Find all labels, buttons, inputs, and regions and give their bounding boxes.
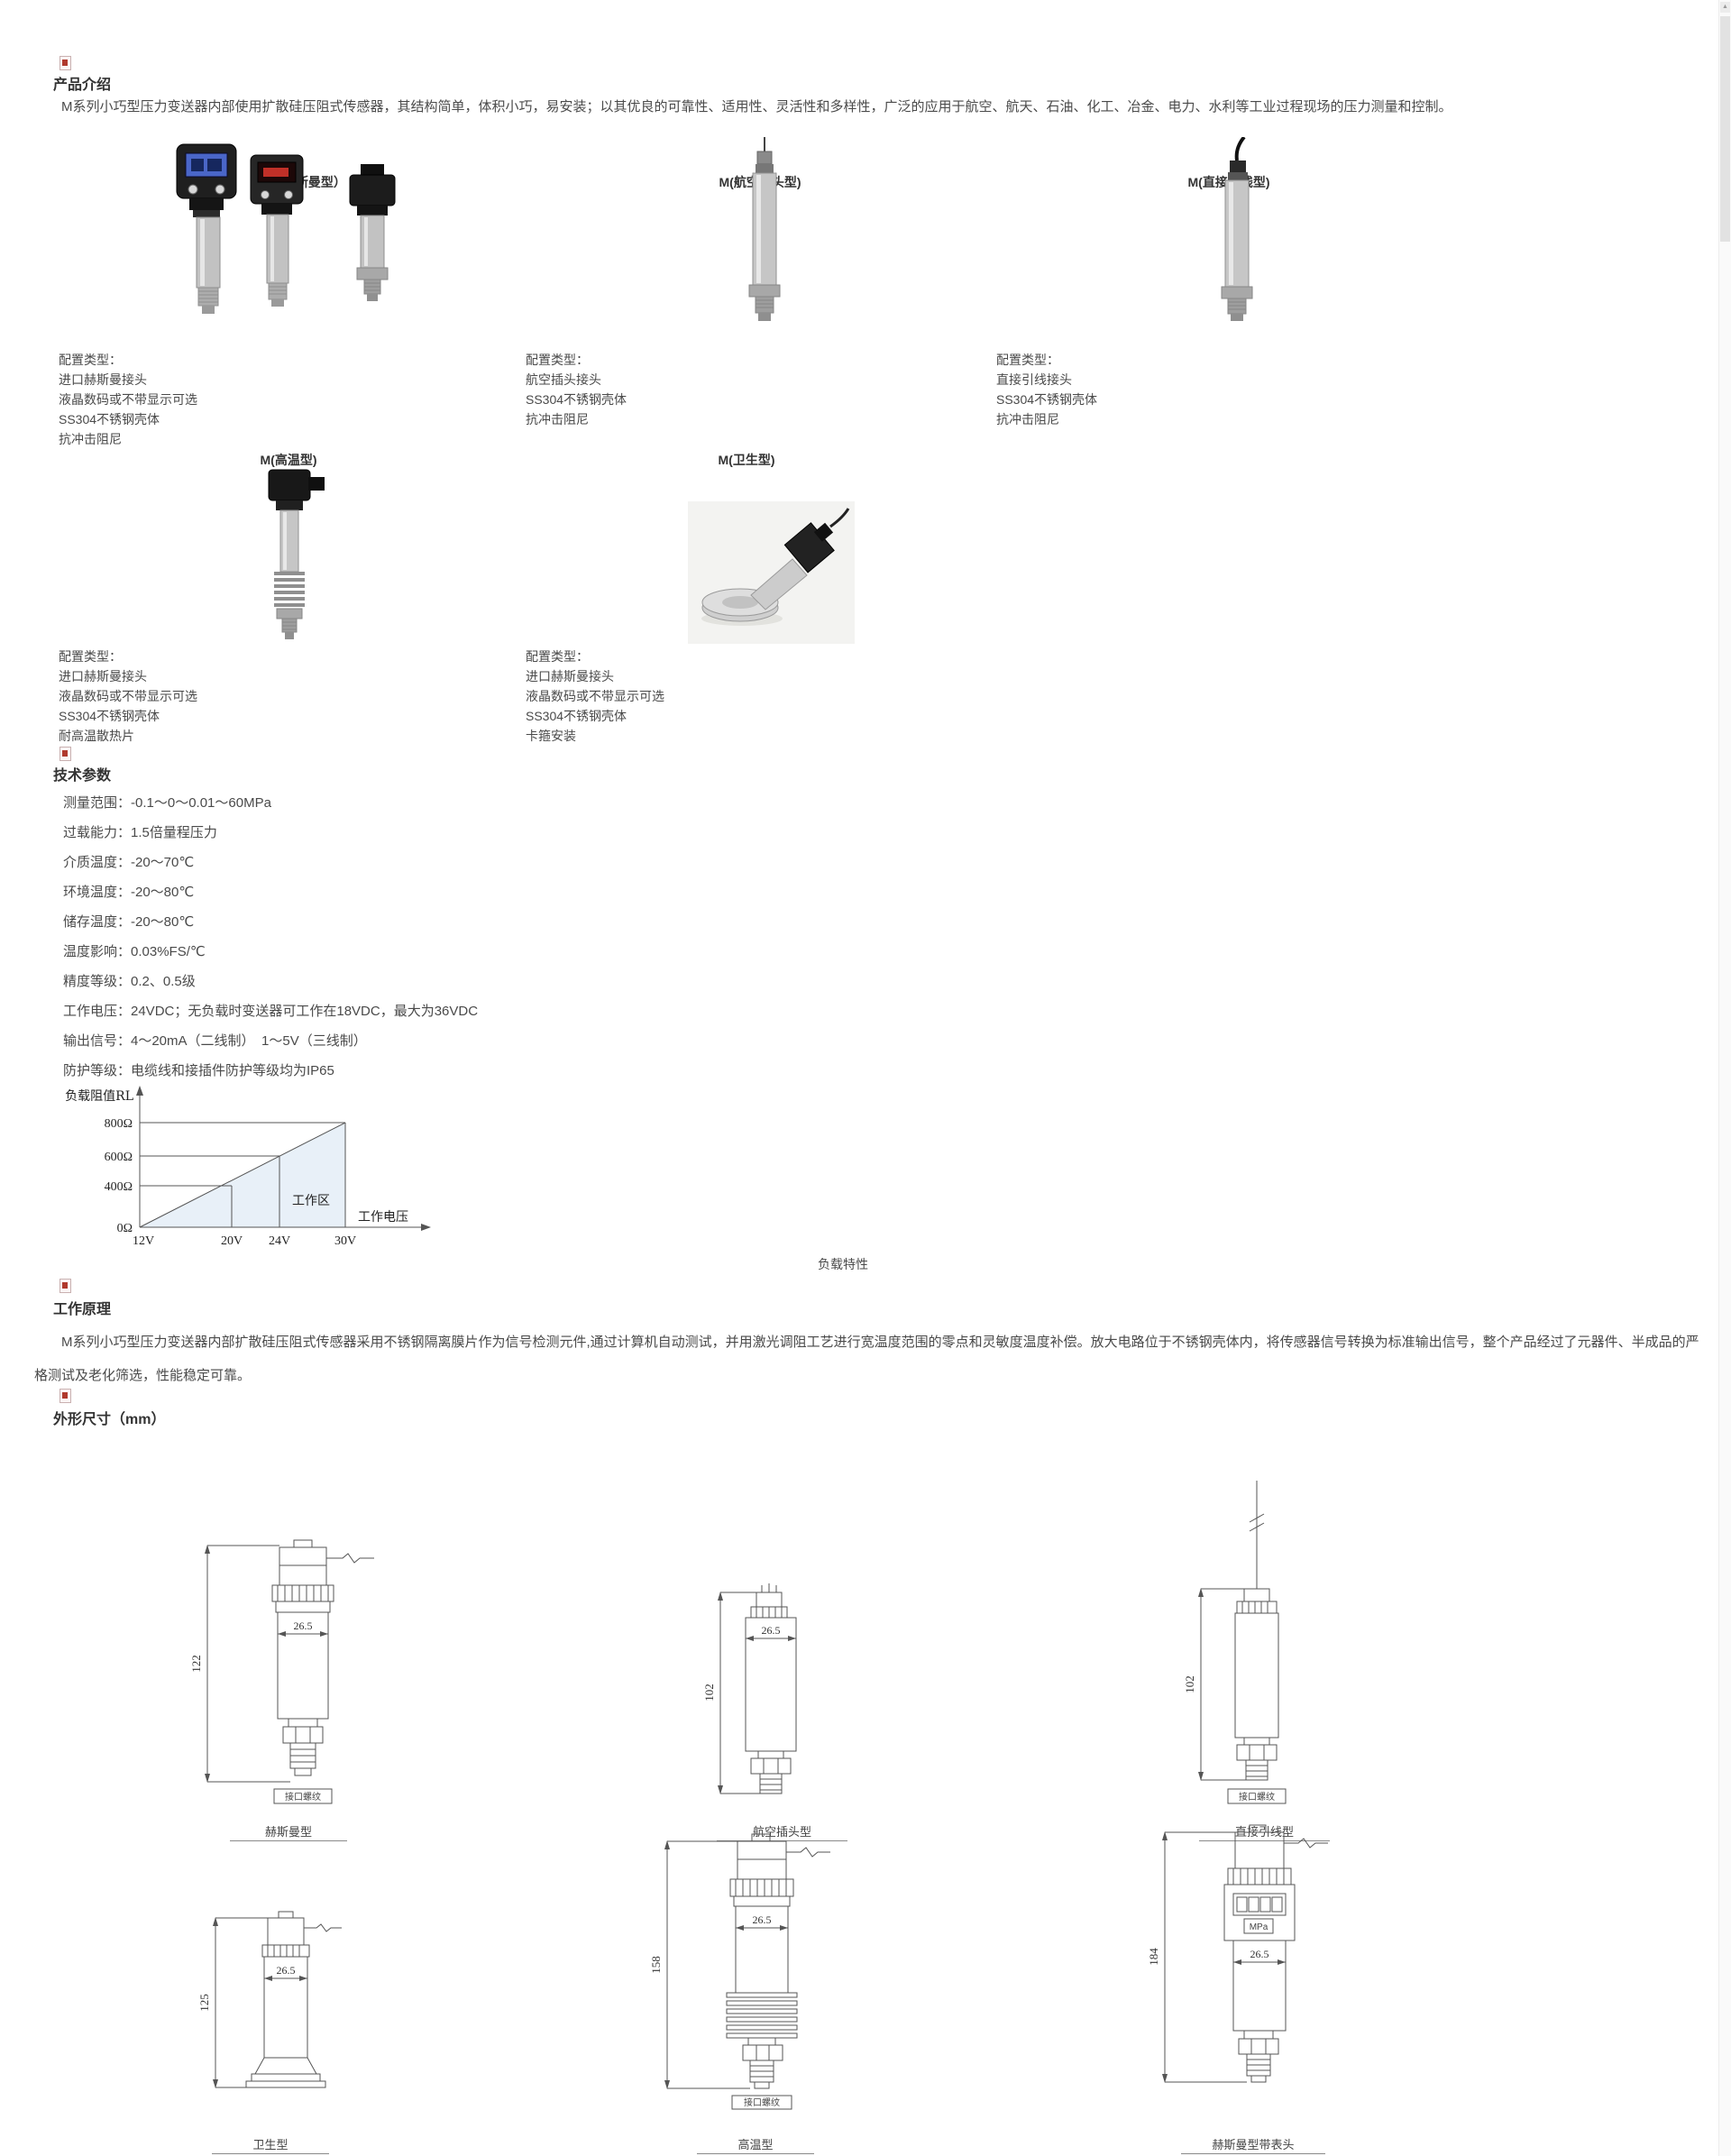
dimension-drawing-high-temp: 26.5 接口螺纹 158 — [642, 1830, 858, 2119]
chart-y-tick: 800Ω — [105, 1117, 133, 1131]
tech-params-list: 测量范围：-0.1～0～0.01～60MPa 过载能力：1.5倍量程压力 介质温… — [63, 788, 478, 1086]
broken-image-icon — [60, 747, 71, 761]
config-item: 进口赫斯曼接头 — [59, 666, 197, 686]
config-item: 抗冲击阻尼 — [526, 409, 627, 429]
principle-paragraph: M系列小巧型压力变送器内部扩散硅压阻式传感器采用不锈钢隔离膜片作为信号检测元件,… — [34, 1326, 1709, 1392]
chart-y-axis-label: 负载阻值RL — [65, 1089, 133, 1104]
config-list-direct-lead: 配置类型： 直接引线接头 SS304不锈钢壳体 抗冲击阻尼 — [996, 350, 1097, 429]
dimension-drawing-display-head: MPa 26.5 184 — [1138, 1823, 1354, 2134]
height-dimension: 125 — [197, 1994, 211, 2012]
config-item: 液晶数码或不带显示可选 — [59, 686, 197, 706]
tech-param: 环境温度：-20～80℃ — [63, 877, 478, 907]
config-title: 配置类型： — [526, 350, 627, 370]
width-dimension: 26.5 — [1250, 1948, 1269, 1960]
chart-x-axis-label: 工作电压 — [358, 1210, 408, 1225]
tech-param: 输出信号：4～20mA（二线制） 1～5V（三线制） — [63, 1026, 478, 1056]
chart-y-tick: 400Ω — [105, 1180, 133, 1194]
config-list-high-temp: 配置类型： 进口赫斯曼接头 液晶数码或不带显示可选 SS304不锈钢壳体 耐高温… — [59, 647, 197, 746]
drawing-name-label: 高温型 — [697, 2135, 814, 2154]
height-dimension: 102 — [1183, 1675, 1196, 1693]
product-label-sanitary: M(卫生型) — [674, 451, 819, 469]
config-item: SS304不锈钢壳体 — [996, 390, 1097, 409]
dimension-drawing-hirschmann: 122 26.5 接口螺纹 — [180, 1533, 397, 1812]
load-chart-caption: 负载特性 — [775, 1255, 911, 1273]
scrollbar-thumb[interactable] — [1720, 16, 1730, 242]
config-item: 进口赫斯曼接头 — [526, 666, 664, 686]
config-list-aviation: 配置类型： 航空插头接头 SS304不锈钢壳体 抗冲击阻尼 — [526, 350, 627, 429]
product-photo-aviation — [732, 137, 795, 352]
drawing-name-label: 赫斯曼型 — [230, 1822, 347, 1841]
config-list-hirschmann: 配置类型： 进口赫斯曼接头 液晶数码或不带显示可选 SS304不锈钢壳体 抗冲击… — [59, 350, 197, 449]
dimension-drawing-direct-lead: 接口螺纹 102 — [1167, 1481, 1347, 1819]
height-dimension: 158 — [649, 1956, 663, 1974]
broken-image-icon — [60, 1389, 71, 1403]
chart-x-tick: 20V — [221, 1234, 243, 1248]
thread-label: 接口螺纹 — [744, 2096, 780, 2108]
config-list-sanitary: 配置类型： 进口赫斯曼接头 液晶数码或不带显示可选 SS304不锈钢壳体 卡箍安… — [526, 647, 664, 746]
config-item: 卡箍安装 — [526, 726, 664, 746]
thread-label: 接口螺纹 — [285, 1791, 321, 1803]
intro-paragraph: M系列小巧型压力变送器内部使用扩散硅压阻式传感器，其结构简单，体积小巧，易安装；… — [34, 97, 1707, 117]
config-item: 直接引线接头 — [996, 370, 1097, 390]
config-item: 耐高温散热片 — [59, 726, 197, 746]
product-photo-direct-lead — [1204, 137, 1268, 352]
thread-label: 接口螺纹 — [1239, 1791, 1275, 1803]
tech-param: 过载能力：1.5倍量程压力 — [63, 818, 478, 848]
tech-param: 温度影响：0.03%FS/℃ — [63, 937, 478, 967]
height-dimension: 102 — [702, 1684, 716, 1702]
height-dimension: 122 — [189, 1655, 203, 1673]
tech-param: 储存温度：-20～80℃ — [63, 907, 478, 937]
tech-params-heading: 技术参数 — [53, 763, 111, 784]
chart-x-tick: 24V — [269, 1234, 290, 1248]
config-item: 航空插头接头 — [526, 370, 627, 390]
config-title: 配置类型： — [59, 350, 197, 370]
chart-x-tick: 30V — [334, 1234, 356, 1248]
drawing-name-label: 赫斯曼型带表头 — [1181, 2135, 1325, 2154]
config-item: 抗冲击阻尼 — [59, 429, 197, 449]
config-item: SS304不锈钢壳体 — [526, 706, 664, 726]
chart-x-tick: 12V — [133, 1234, 154, 1248]
broken-image-icon — [60, 56, 71, 70]
display-unit-label: MPa — [1250, 1922, 1268, 1932]
dimension-drawing-aviation: 26.5 102 — [699, 1583, 843, 1826]
config-item: 进口赫斯曼接头 — [59, 370, 197, 390]
product-photo-sanitary — [688, 501, 855, 644]
config-item: SS304不锈钢壳体 — [59, 409, 197, 429]
config-title: 配置类型： — [59, 647, 197, 666]
width-dimension: 26.5 — [753, 1913, 772, 1926]
config-item: 液晶数码或不带显示可选 — [526, 686, 664, 706]
product-photo-high-temp — [254, 466, 335, 652]
product-photo-hirschmann — [164, 142, 426, 352]
tech-param: 测量范围：-0.1～0～0.01～60MPa — [63, 788, 478, 818]
width-dimension: 26.5 — [277, 1964, 296, 1977]
chart-region-label: 工作区 — [292, 1194, 330, 1208]
principle-heading: 工作原理 — [53, 1297, 111, 1318]
chart-y-tick: 0Ω — [117, 1222, 133, 1235]
config-title: 配置类型： — [996, 350, 1097, 370]
broken-image-icon — [60, 1279, 71, 1293]
scrollbar-up-arrow-icon[interactable]: ▲ — [1720, 2, 1730, 13]
dimension-drawing-sanitary: 26.5 125 — [185, 1910, 365, 2135]
height-dimension: 184 — [1147, 1948, 1160, 1966]
product-datasheet-page: 产品介绍 M系列小巧型压力变送器内部使用扩散硅压阻式传感器，其结构简单，体积小巧… — [0, 0, 1731, 2156]
config-item: SS304不锈钢壳体 — [59, 706, 197, 726]
tech-param: 工作电压：24VDC；无负载时变送器可工作在18VDC，最大为36VDC — [63, 996, 478, 1026]
config-item: SS304不锈钢壳体 — [526, 390, 627, 409]
width-dimension: 26.5 — [762, 1624, 781, 1637]
drawing-name-label: 卫生型 — [212, 2135, 329, 2154]
tech-param: 精度等级：0.2、0.5级 — [63, 967, 478, 996]
intro-heading: 产品介绍 — [53, 72, 111, 94]
load-characteristic-chart: 负载阻值RL 800Ω 600Ω 400Ω 0Ω 12V 20V 24V 30V… — [50, 1080, 437, 1261]
tech-param: 介质温度：-20～70℃ — [63, 848, 478, 877]
dimensions-heading: 外形尺寸（mm） — [53, 1407, 165, 1428]
config-item: 液晶数码或不带显示可选 — [59, 390, 197, 409]
width-dimension: 26.5 — [294, 1619, 313, 1632]
config-title: 配置类型： — [526, 647, 664, 666]
scrollbar[interactable]: ▲ — [1718, 0, 1731, 2156]
config-item: 抗冲击阻尼 — [996, 409, 1097, 429]
chart-y-tick: 600Ω — [105, 1151, 133, 1164]
